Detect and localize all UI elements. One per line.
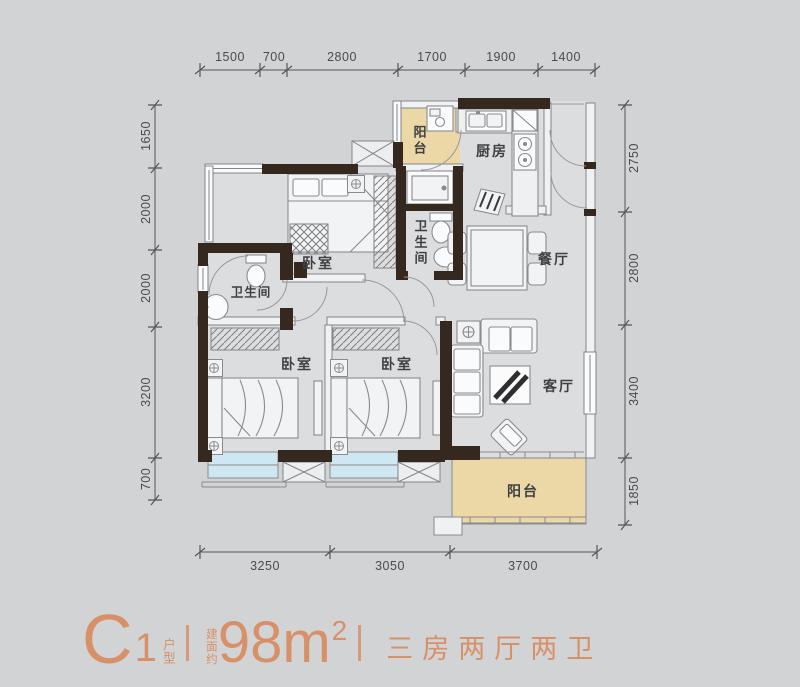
fridge <box>513 110 537 131</box>
dimension-label: 2800 <box>627 253 641 283</box>
kitchen-sink <box>466 111 506 131</box>
dimension-label: 1900 <box>486 50 516 64</box>
room-label-dining: 餐厅 <box>538 249 570 269</box>
bed-bedroom-left <box>206 378 298 438</box>
area-superscript: 2 <box>332 620 348 642</box>
divider-bar <box>186 625 189 661</box>
unit-model-number: 1 <box>135 630 157 666</box>
dimension-label: 2750 <box>627 143 641 173</box>
bed-bedroom-middle <box>331 378 420 438</box>
unit-model-suffix: 户型 <box>161 638 175 665</box>
room-label-living: 客厅 <box>543 376 575 396</box>
floor-plan-drawing <box>0 0 800 687</box>
area-value: 98m <box>218 620 331 666</box>
dimension-label: 700 <box>263 50 285 64</box>
dimension-label: 2000 <box>139 273 153 303</box>
dimension-label: 3200 <box>139 377 153 407</box>
window-sills <box>202 482 404 487</box>
dimension-label: 3700 <box>508 559 538 573</box>
dimension-label: 3250 <box>250 559 280 573</box>
room-label-kitchen: 厨房 <box>476 141 508 161</box>
dimension-label: 2000 <box>139 194 153 224</box>
wardrobe-bedroom-left <box>211 328 279 350</box>
dimension-label: 1850 <box>627 476 641 506</box>
rug-top-bedroom <box>290 224 328 254</box>
room-label-bedroom-left: 卧室 <box>281 354 313 374</box>
washing-machine <box>427 106 453 131</box>
dimension-label: 3050 <box>375 559 405 573</box>
shower-tray <box>407 171 453 204</box>
layout-tagline: 三房两厅两卫 <box>386 634 602 664</box>
unit-model-letter: C <box>82 612 133 666</box>
area-prefix: 建面约 <box>204 628 218 666</box>
room-label-bathroom-left: 卫生间 <box>231 282 272 301</box>
dimension-line-bottom <box>195 545 602 559</box>
divider-bar <box>358 625 361 661</box>
unit-title-block: C 1 户型 建面约 98m 2 三房两厅两卫 <box>82 612 602 666</box>
room-label-bedroom-top: 卧室 <box>302 253 334 273</box>
dimension-line-top <box>195 63 600 77</box>
room-label-balcony-top: 阳台 <box>410 125 429 157</box>
dimension-label: 1700 <box>417 50 447 64</box>
room-label-bathroom-middle: 卫生间 <box>411 219 430 267</box>
dimension-label: 1650 <box>139 121 153 151</box>
tv-board-bedroom-middle <box>433 381 441 435</box>
tv-board-bedroom-left <box>314 381 322 435</box>
dimension-label: 1400 <box>551 50 581 64</box>
dimension-label: 700 <box>139 468 153 490</box>
stove <box>514 134 536 170</box>
side-table <box>457 321 480 343</box>
dimension-label: 1500 <box>215 50 245 64</box>
dimension-label: 2800 <box>327 50 357 64</box>
wardrobe-bedroom-middle <box>333 328 399 350</box>
floorplan-page: 阳台 厨房 卫生间 餐厅 卧室 卫生间 卧室 卧室 客厅 阳台 1500 700… <box>0 0 800 687</box>
wardrobe-top-bedroom <box>374 176 396 268</box>
dimension-label: 3400 <box>627 376 641 406</box>
room-label-bedroom-middle: 卧室 <box>381 354 413 374</box>
living-rug <box>490 366 530 404</box>
room-label-balcony-bottom: 阳台 <box>507 481 539 501</box>
